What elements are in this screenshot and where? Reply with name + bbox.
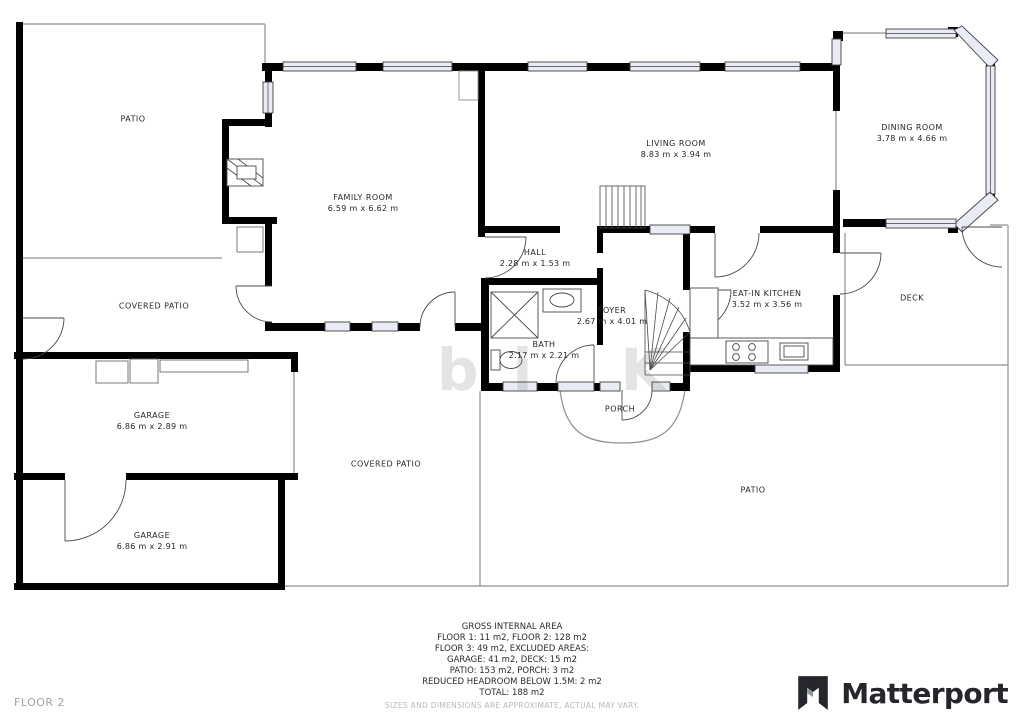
room-label-hall: HALL 2.28 m x 1.53 m bbox=[500, 247, 571, 269]
room-label-garage-lower: GARAGE 6.86 m x 2.91 m bbox=[117, 530, 188, 552]
patio-table-icon bbox=[237, 227, 263, 252]
area-summary-line: FLOOR 3: 49 m2, EXCLUDED AREAS: bbox=[385, 644, 639, 655]
deck-right-door bbox=[962, 227, 1002, 267]
area-summary-line: PATIO: 153 m2, PORCH: 3 m2 bbox=[385, 666, 639, 677]
area-summary: GROSS INTERNAL AREA FLOOR 1: 11 m2, FLOO… bbox=[385, 622, 639, 711]
family-room-bottom-door bbox=[420, 292, 455, 327]
living-kitchen-door bbox=[715, 233, 759, 277]
area-summary-line: REDUCED HEADROOM BELOW 1.5M: 2 m2 bbox=[385, 677, 639, 688]
kitchen-sink-icon bbox=[780, 343, 808, 360]
stove-icon bbox=[726, 341, 768, 363]
straight-stairs-icon bbox=[600, 186, 645, 228]
room-label-dining-room: DINING ROOM 3.78 m x 4.66 m bbox=[877, 122, 948, 144]
floor-label: FLOOR 2 bbox=[14, 696, 65, 709]
garage-cabinets-icon bbox=[96, 359, 248, 383]
matterport-logo-text: Matterport bbox=[841, 677, 1008, 710]
room-label-covered-patio-lower: COVERED PATIO bbox=[351, 459, 421, 470]
room-label-eat-in-kitchen: EAT-IN KITCHEN 3.52 m x 3.56 m bbox=[732, 288, 803, 310]
room-label-family-room: FAMILY ROOM 6.59 m x 6.62 m bbox=[328, 192, 399, 214]
room-label-foyer: FOYER 2.67 m x 4.01 m bbox=[577, 305, 648, 327]
kitchen-deck-door bbox=[840, 253, 881, 294]
room-label-bath: BATH 2.17 m x 2.21 m bbox=[509, 339, 580, 361]
area-summary-line: GARAGE: 41 m2, DECK: 15 m2 bbox=[385, 655, 639, 666]
fireplace-icon bbox=[227, 159, 263, 186]
room-label-deck: DECK bbox=[900, 293, 924, 304]
shower-icon bbox=[491, 292, 538, 338]
area-summary-line: FLOOR 1: 11 m2, FLOOR 2: 128 m2 bbox=[385, 633, 639, 644]
area-summary-title: GROSS INTERNAL AREA bbox=[385, 622, 639, 633]
wall-niche bbox=[459, 71, 478, 100]
room-label-patio-top: PATIO bbox=[121, 114, 146, 125]
room-label-living-room: LIVING ROOM 8.83 m x 3.94 m bbox=[641, 138, 712, 160]
sink-vanity-icon bbox=[543, 289, 581, 312]
room-label-patio-bottom: PATIO bbox=[741, 485, 766, 496]
room-label-porch: PORCH bbox=[605, 404, 635, 415]
family-room-patio-door bbox=[236, 286, 272, 322]
room-label-covered-patio-upper: COVERED PATIO bbox=[119, 301, 189, 312]
matterport-logo-icon bbox=[794, 674, 832, 712]
area-summary-line: TOTAL: 188 m2 bbox=[385, 688, 639, 699]
matterport-logo: Matterport bbox=[794, 674, 1008, 712]
floorplan-page: bi K PATIO FAMILY ROOM 6.59 m x 6.62 m L… bbox=[0, 0, 1024, 724]
disclaimer-text: SIZES AND DIMENSIONS ARE APPROXIMATE, AC… bbox=[385, 700, 639, 711]
room-label-garage-upper: GARAGE 6.86 m x 2.89 m bbox=[117, 410, 188, 432]
